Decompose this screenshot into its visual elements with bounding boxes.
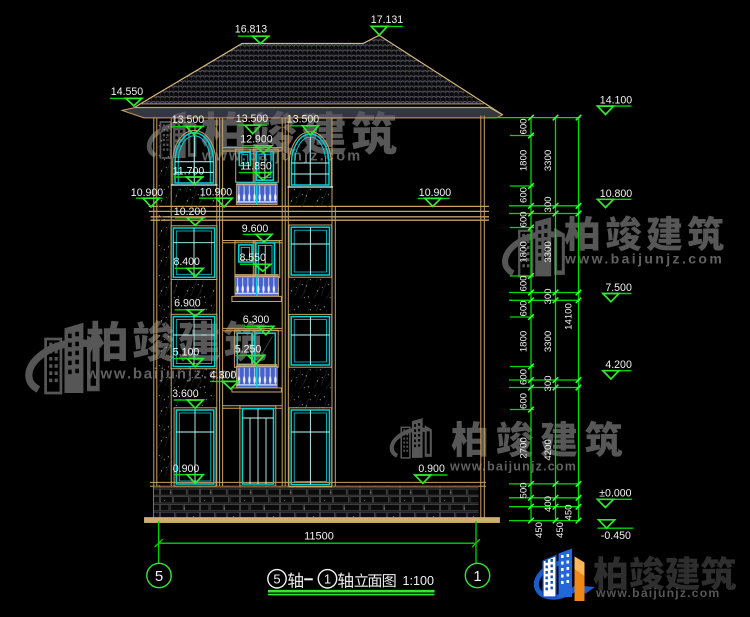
svg-text:±0.000: ±0.000: [599, 488, 631, 500]
svg-text:4.200: 4.200: [605, 359, 632, 371]
svg-text:600: 600: [519, 393, 530, 409]
svg-text:17.131: 17.131: [371, 14, 404, 26]
svg-text:12.900: 12.900: [240, 134, 273, 146]
svg-text:450: 450: [555, 522, 566, 538]
svg-text:2700: 2700: [519, 437, 530, 458]
svg-text:13.500: 13.500: [172, 114, 205, 126]
svg-text:8.400: 8.400: [173, 256, 200, 268]
svg-text:www.baijunjz.com: www.baijunjz.com: [449, 460, 577, 474]
svg-text:11.850: 11.850: [240, 160, 272, 172]
svg-text:1800: 1800: [519, 150, 530, 171]
svg-text:1: 1: [324, 572, 331, 587]
svg-text:300: 300: [543, 375, 554, 391]
svg-text:600: 600: [519, 211, 530, 227]
svg-text:11.700: 11.700: [173, 165, 205, 177]
svg-text:5: 5: [273, 572, 280, 587]
svg-text:4.300: 4.300: [210, 369, 237, 381]
svg-text:600: 600: [519, 275, 530, 291]
svg-text:13.500: 13.500: [236, 113, 269, 125]
svg-text:600: 600: [519, 300, 530, 316]
svg-text:1800: 1800: [519, 331, 530, 352]
svg-text:3300: 3300: [543, 331, 554, 352]
svg-text:0.900: 0.900: [418, 463, 445, 475]
svg-text:1800: 1800: [519, 241, 530, 262]
svg-text:9.600: 9.600: [242, 223, 269, 235]
svg-text:10.900: 10.900: [419, 187, 452, 199]
svg-text:13.500: 13.500: [287, 114, 320, 126]
svg-text:6.900: 6.900: [174, 298, 201, 310]
svg-text:3300: 3300: [543, 241, 554, 262]
svg-text:14.100: 14.100: [600, 95, 633, 107]
svg-text:3.600: 3.600: [172, 388, 199, 400]
svg-text:0.900: 0.900: [173, 463, 200, 475]
svg-text:www.baijunjz.com: www.baijunjz.com: [595, 586, 720, 600]
svg-text:14.550: 14.550: [111, 86, 144, 98]
svg-text:1:100: 1:100: [403, 574, 435, 588]
svg-text:450: 450: [534, 522, 545, 538]
svg-text:1: 1: [473, 568, 481, 585]
svg-text:10.900: 10.900: [200, 187, 233, 199]
svg-text:600: 600: [519, 369, 530, 385]
svg-text:-0.450: -0.450: [601, 530, 631, 542]
svg-text:www.baijunjz.com: www.baijunjz.com: [564, 251, 724, 267]
svg-text:11500: 11500: [304, 531, 334, 543]
svg-text:600: 600: [519, 187, 530, 203]
svg-text:14100: 14100: [564, 303, 575, 330]
svg-text:400: 400: [543, 496, 554, 512]
svg-text:600: 600: [519, 118, 530, 134]
svg-text:10.900: 10.900: [131, 187, 164, 199]
svg-text:4200: 4200: [543, 439, 554, 460]
svg-text:8.550: 8.550: [239, 252, 266, 264]
svg-text:500: 500: [519, 482, 530, 498]
svg-text:300: 300: [543, 288, 554, 304]
svg-text:3300: 3300: [543, 150, 554, 171]
svg-text:10.200: 10.200: [174, 206, 207, 218]
svg-text:6.300: 6.300: [243, 314, 270, 326]
svg-text:10.800: 10.800: [600, 188, 633, 200]
svg-text:300: 300: [543, 196, 554, 212]
svg-text:5.250: 5.250: [235, 343, 262, 355]
svg-text:450: 450: [564, 504, 575, 520]
svg-text:16.813: 16.813: [235, 24, 268, 36]
svg-text:5.100: 5.100: [173, 347, 200, 359]
svg-text:5: 5: [155, 568, 163, 585]
svg-text:7.500: 7.500: [605, 282, 632, 294]
